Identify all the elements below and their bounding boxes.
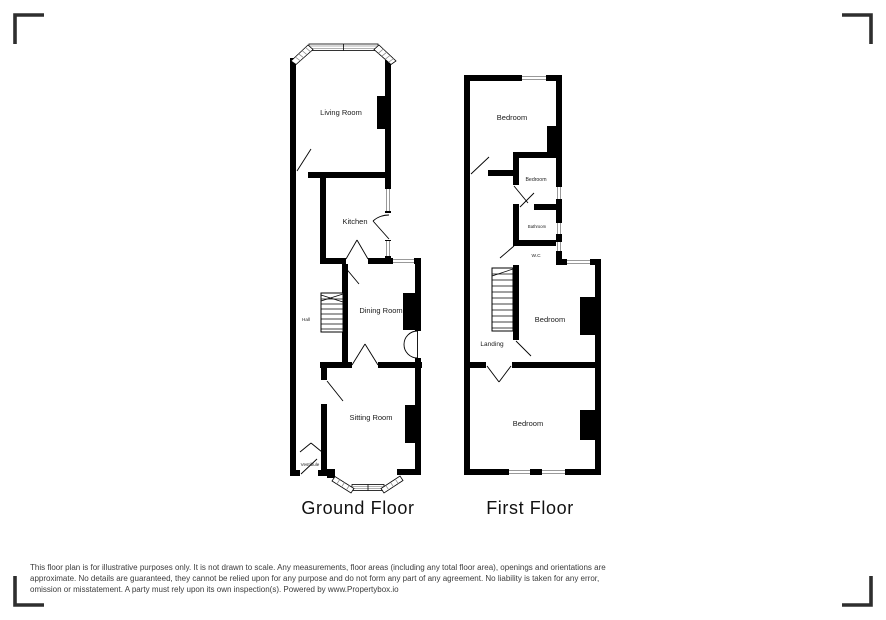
room-label-bedroom-3: Bedroom — [535, 315, 565, 324]
first-floor-plan: Bedroom Bedroom Bathroom W.C Bedroom Lan… — [464, 75, 601, 475]
corner-bracket-bottom-right-icon — [842, 576, 871, 605]
room-label-dining-room: Dining Room — [359, 306, 402, 315]
room-label-bedroom-2: Bedroom — [525, 177, 546, 183]
chimney-breast — [405, 405, 421, 443]
floorplan-drawing: Living Room Kitchen Hall Dining Room Sit… — [0, 0, 886, 620]
chimney-breast — [580, 410, 601, 440]
chimney-breast — [580, 297, 601, 335]
first-floor-stairs — [492, 268, 513, 331]
room-label-bedroom-4: Bedroom — [513, 419, 543, 428]
room-label-bathroom: Bathroom — [528, 224, 547, 229]
corner-bracket-top-left-icon — [15, 15, 44, 44]
ground-floor-title: Ground Floor — [301, 498, 414, 519]
disclaimer-text: This floor plan is for illustrative purp… — [30, 563, 630, 595]
room-label-bedroom-1: Bedroom — [497, 113, 527, 122]
chimney-breast — [403, 293, 421, 330]
corner-bracket-icons — [15, 15, 871, 605]
ground-floor-stairs — [321, 293, 343, 332]
chimney-breast — [377, 96, 391, 129]
floorplan-page: Living Room Kitchen Hall Dining Room Sit… — [0, 0, 886, 620]
first-floor-title: First Floor — [486, 498, 574, 519]
room-label-vestibule: Vestibule — [301, 462, 320, 467]
chimney-breast — [547, 126, 562, 155]
room-label-living-room: Living Room — [320, 108, 362, 117]
corner-bracket-top-right-icon — [842, 15, 871, 44]
room-label-sitting-room: Sitting Room — [350, 413, 393, 422]
room-label-wc: W.C — [531, 253, 541, 259]
room-label-hall: Hall — [302, 317, 310, 322]
room-label-landing: Landing — [480, 341, 504, 348]
ground-floor-plan: Living Room Kitchen Hall Dining Room Sit… — [290, 44, 422, 493]
room-label-kitchen: Kitchen — [342, 217, 367, 226]
